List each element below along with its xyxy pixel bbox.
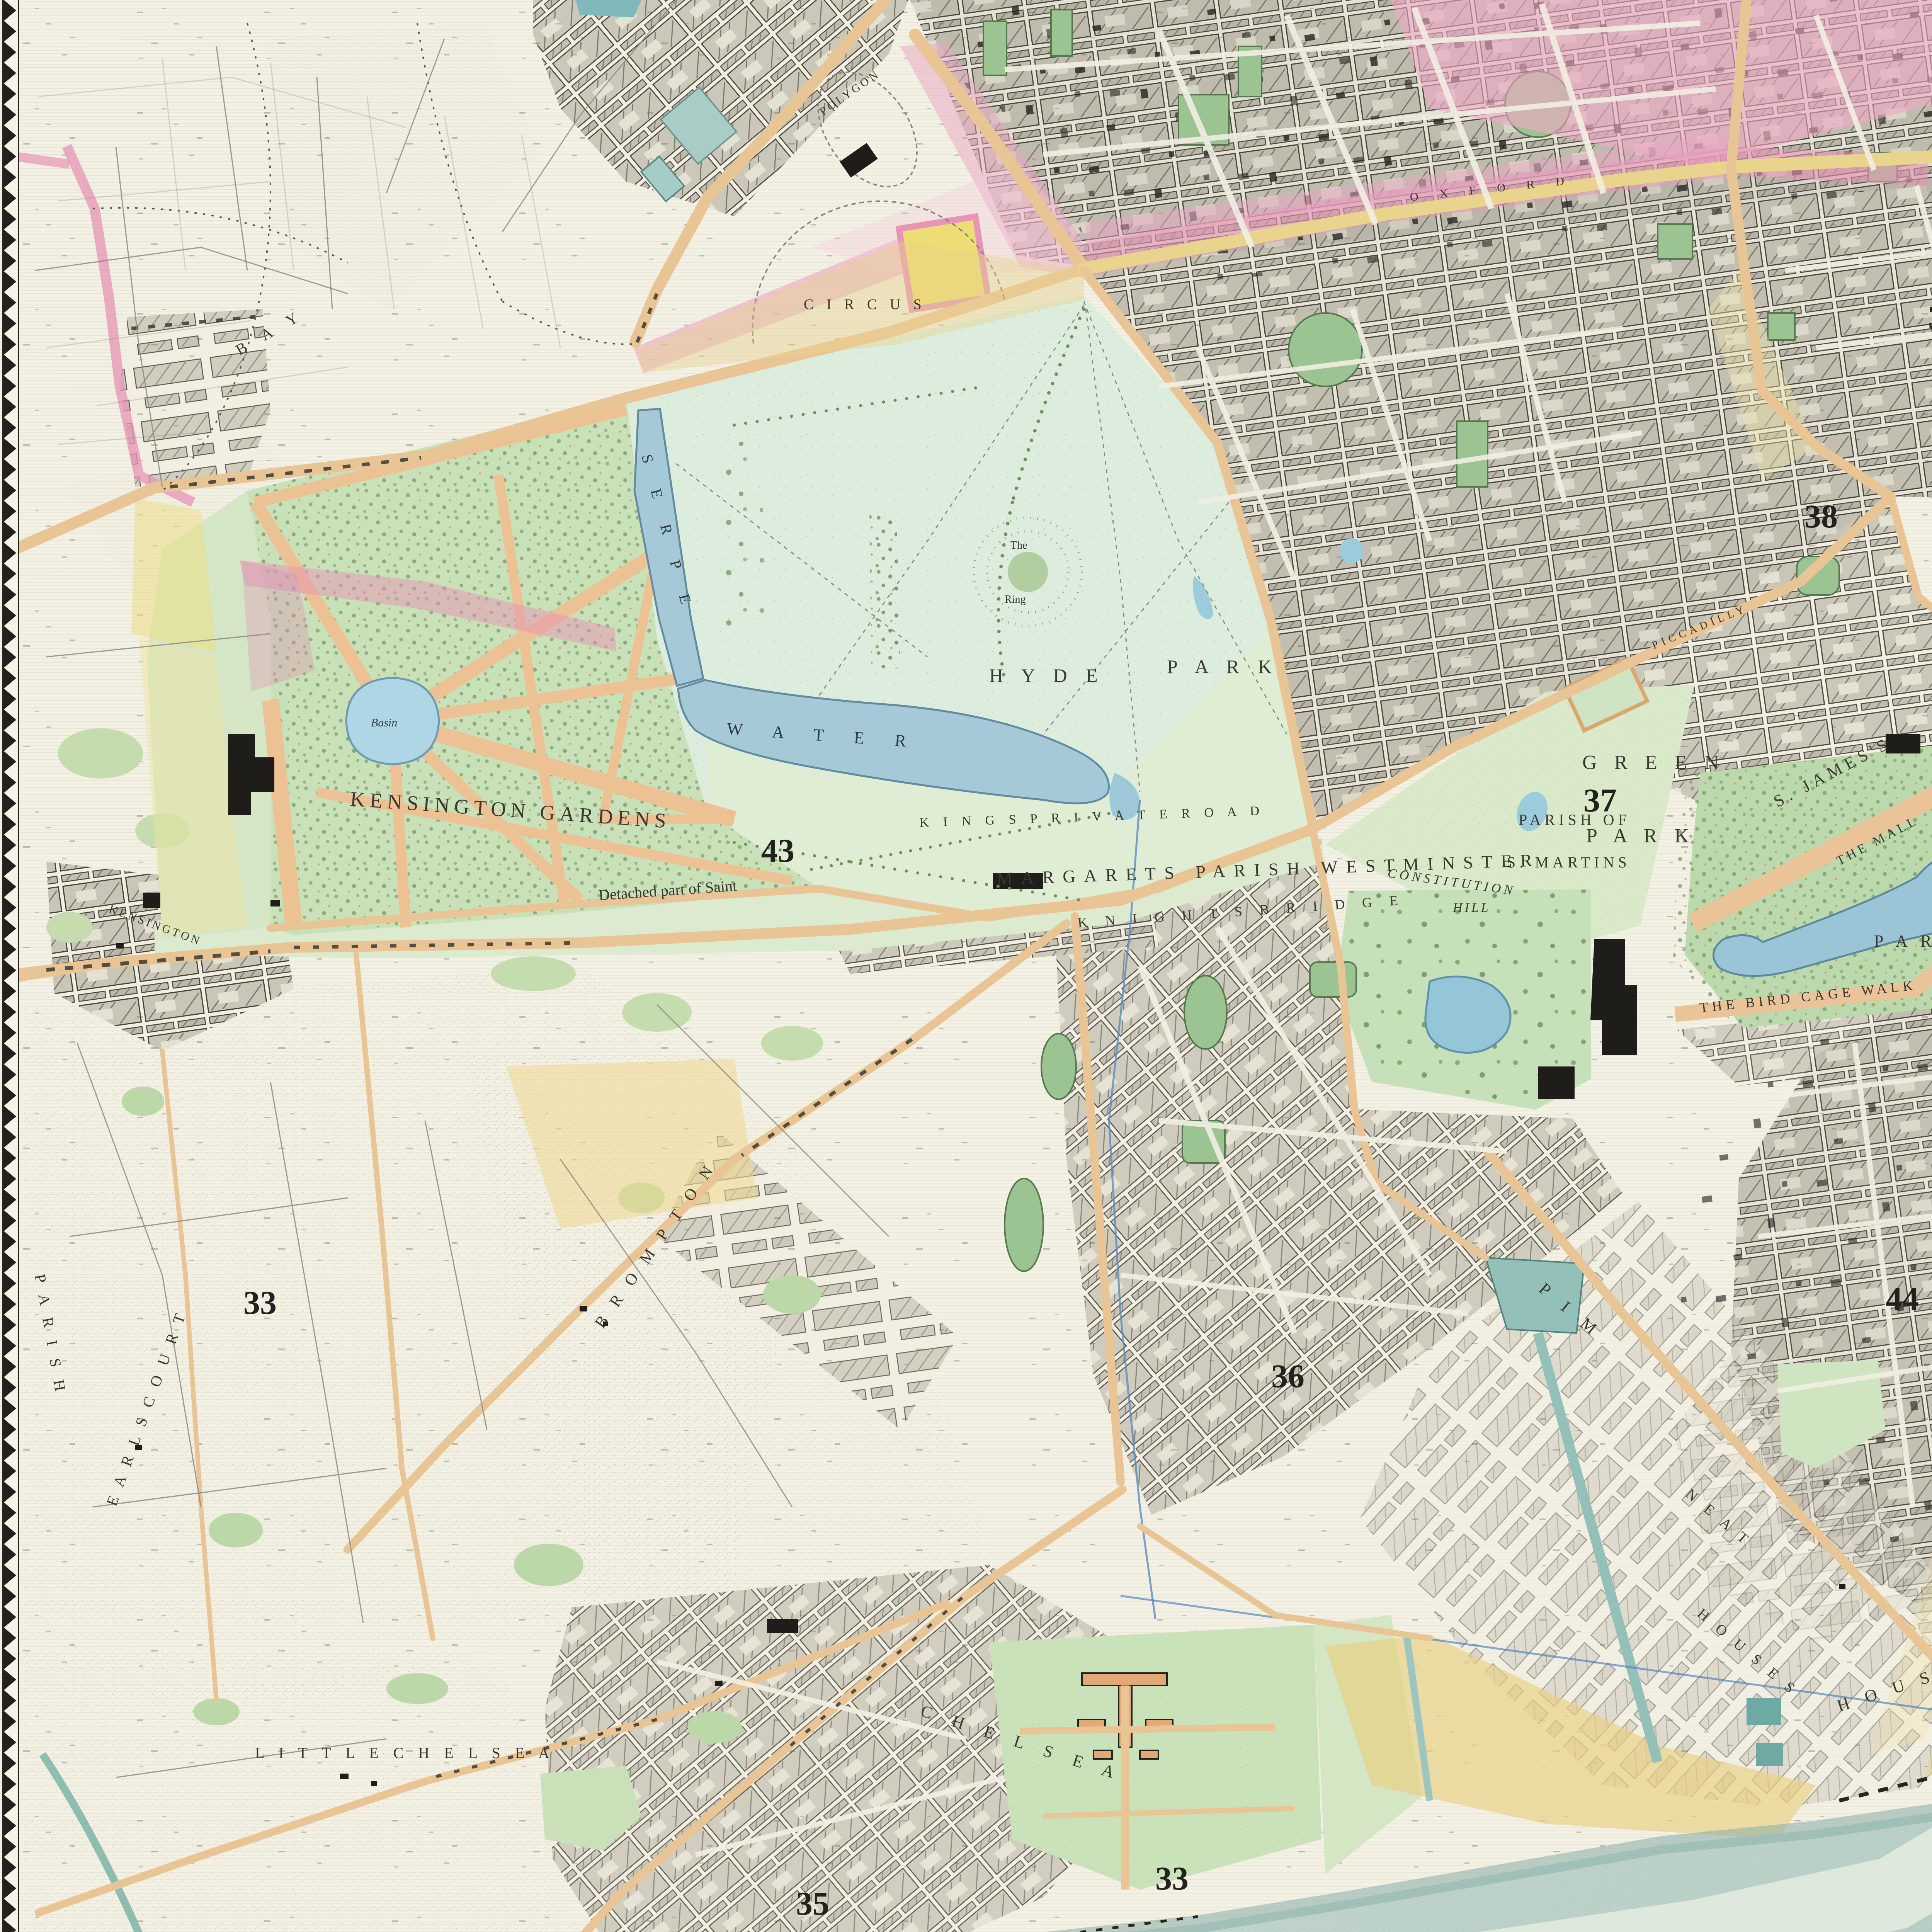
svg-text:35: 35 [796, 1885, 829, 1922]
svg-text:P A R K: P A R K [1874, 932, 1932, 951]
svg-text:G R E E N: G R E E N [1582, 752, 1725, 774]
svg-text:38: 38 [1804, 498, 1838, 535]
svg-text:39: 39 [1928, 299, 1932, 336]
svg-text:H Y D E: H Y D E [989, 665, 1105, 686]
svg-text:The: The [1010, 539, 1027, 551]
svg-text:37: 37 [1583, 782, 1617, 819]
svg-text:33: 33 [1155, 1860, 1189, 1897]
svg-text:C I R C U S: C I R C U S [804, 296, 926, 313]
svg-text:33: 33 [243, 1284, 277, 1321]
svg-text:P A R K: P A R K [1167, 656, 1279, 677]
svg-text:Basin: Basin [371, 716, 397, 729]
svg-text:Ring: Ring [1005, 594, 1026, 605]
svg-text:44: 44 [1886, 1280, 1919, 1317]
svg-text:43: 43 [761, 832, 794, 869]
svg-text:HILL: HILL [1452, 901, 1491, 915]
svg-text:I: I [1743, 1919, 1765, 1932]
svg-text:L I T T L E C H E L S E A: L I T T L E C H E L S E A [255, 1744, 555, 1762]
svg-text:36: 36 [1271, 1357, 1304, 1395]
